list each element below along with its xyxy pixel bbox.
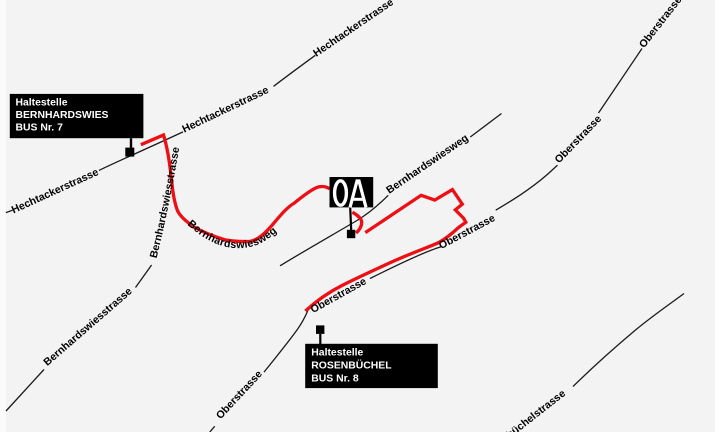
svg-text:ROSENBÜCHEL: ROSENBÜCHEL (311, 358, 392, 371)
svg-text:BUS Nr. 7: BUS Nr. 7 (16, 122, 64, 133)
svg-text:BUS Nr. 8: BUS Nr. 8 (311, 373, 359, 384)
svg-text:Haltestelle: Haltestelle (311, 347, 363, 358)
svg-text:Haltestelle: Haltestelle (16, 98, 68, 109)
svg-text:BERNHARDSWIES: BERNHARDSWIES (16, 110, 109, 121)
